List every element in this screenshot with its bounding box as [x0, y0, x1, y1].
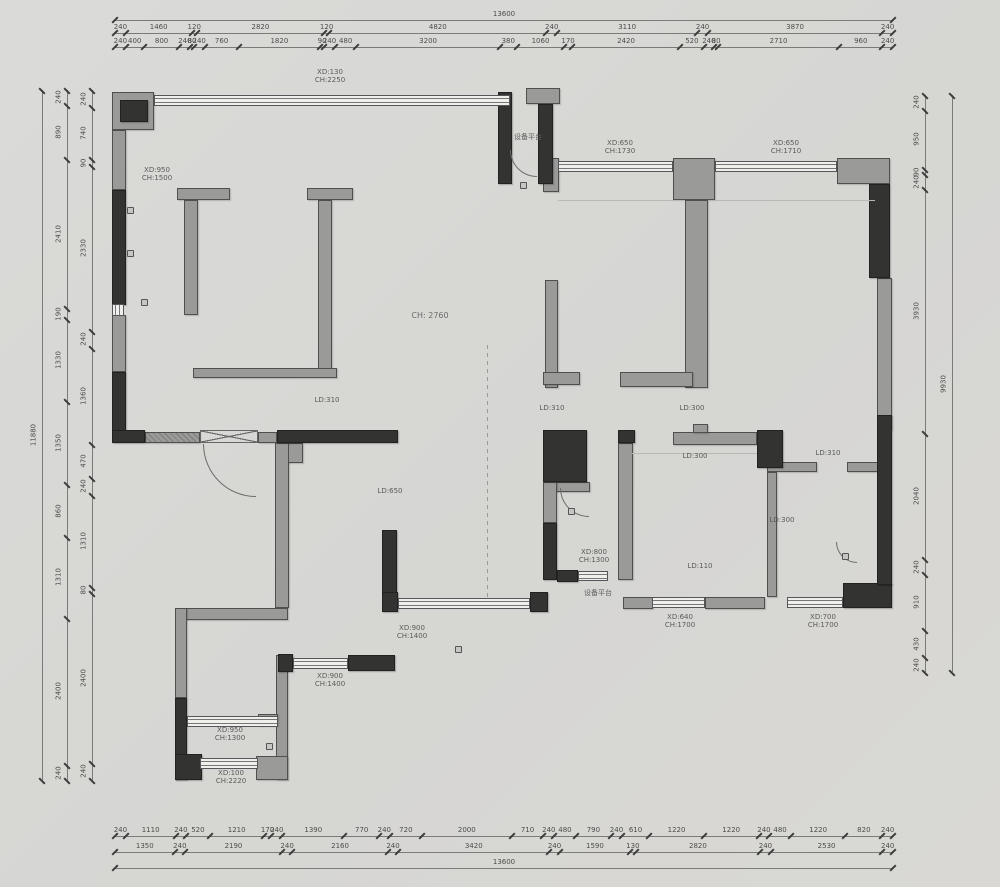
dim-label: 480: [558, 827, 571, 834]
fixture-icon: [141, 299, 148, 306]
dim-label: 170: [561, 38, 574, 45]
dim-label: 240: [173, 843, 186, 850]
dim-label: 760: [215, 38, 228, 45]
dim-line: [115, 868, 893, 869]
fixture-icon: [127, 250, 134, 257]
door-swing-icon: [203, 444, 256, 497]
beam-label: LD:110: [687, 562, 712, 570]
dim-line: [115, 47, 893, 48]
dim-label: 1350: [136, 843, 154, 850]
dim-label: 240: [542, 827, 555, 834]
window-band: [154, 95, 510, 106]
dim-label: 1330: [56, 351, 63, 369]
dim-label: 2420: [617, 38, 635, 45]
dim-label: 4820: [429, 24, 447, 31]
wall-segment: [175, 608, 288, 620]
wall-dark-segment: [277, 430, 398, 443]
dim-label: 240: [757, 827, 770, 834]
floorplan-canvas: XD:130 CH:2250 XD:950 CH:1500 设备平台 XD:65…: [0, 0, 1000, 887]
beam-label: LD:300: [769, 516, 794, 524]
wall-segment: [673, 158, 715, 200]
beam-label: LD:310: [815, 449, 840, 457]
window-annotation: XD:650 CH:1710: [771, 139, 801, 155]
beam-label: LD:310: [539, 404, 564, 412]
dim-label: 240: [881, 24, 894, 31]
wall-segment: [620, 372, 693, 387]
wall-dark-segment: [618, 430, 635, 443]
dim-label: 1590: [586, 843, 604, 850]
dim-label: 1360: [81, 387, 88, 405]
window-band: [715, 161, 837, 172]
dim-label: 240: [280, 843, 293, 850]
entry-door-opening: [200, 430, 258, 443]
dim-label: 13600: [493, 859, 515, 866]
platform-label: 设备平台: [514, 133, 542, 141]
dim-label: 820: [857, 827, 870, 834]
dim-label: 240: [114, 24, 127, 31]
dim-label: 800: [155, 38, 168, 45]
wall-dark-segment: [278, 654, 293, 672]
floorplan-drawing: XD:130 CH:2250 XD:950 CH:1500 设备平台 XD:65…: [0, 0, 1000, 887]
guide-line: [558, 200, 685, 201]
dim-label: 1220: [668, 827, 686, 834]
window-band: [558, 161, 673, 172]
window-annotation: XD:640 CH:1700: [665, 613, 695, 629]
wall-segment: [543, 482, 557, 523]
window-band: [652, 597, 705, 608]
window-annotation: XD:900 CH:1400: [315, 672, 345, 688]
wall-dark-segment: [538, 104, 553, 184]
dim-label: 240: [56, 766, 63, 779]
dim-line: [952, 95, 953, 672]
wall-segment: [288, 443, 303, 463]
wall-segment: [307, 188, 353, 200]
wall-dark-segment: [112, 430, 145, 443]
wall-dark-segment: [530, 592, 548, 612]
dim-label: 2160: [331, 843, 349, 850]
dim-label: 520: [191, 827, 204, 834]
dim-label: 1390: [304, 827, 322, 834]
wall-dark-segment: [112, 190, 126, 305]
dim-label: 240: [81, 92, 88, 105]
dim-label: 2820: [689, 843, 707, 850]
wall-segment: [145, 432, 200, 443]
dim-label: 480: [339, 38, 352, 45]
dim-label: 960: [854, 38, 867, 45]
dim-label: 120: [320, 24, 333, 31]
window-band: [200, 758, 258, 769]
dim-label: 130: [626, 843, 639, 850]
dim-label: 240: [323, 38, 336, 45]
dim-label: 480: [773, 827, 786, 834]
dim-label: 240: [881, 827, 894, 834]
wall-dark-segment: [348, 655, 395, 671]
dim-label: 240: [378, 827, 391, 834]
wall-segment: [623, 597, 653, 609]
window-band: [112, 304, 124, 316]
dim-label: 3420: [465, 843, 483, 850]
fixture-icon: [127, 207, 134, 214]
dim-label: 80: [81, 586, 88, 595]
beam-label: LD:310: [314, 396, 339, 404]
dim-label: 3870: [786, 24, 804, 31]
wall-segment: [275, 443, 289, 608]
fixture-icon: [842, 553, 849, 560]
dim-label: 13600: [493, 11, 515, 18]
dim-line: [925, 95, 926, 672]
guide-line: [487, 345, 488, 600]
dim-label: 9930: [941, 375, 948, 393]
wall-dark-segment: [175, 754, 202, 780]
window-annotation: XD:130 CH:2250: [315, 68, 345, 84]
dim-label: 240: [881, 38, 894, 45]
dim-label: 740: [81, 127, 88, 140]
dim-label: 910: [914, 596, 921, 609]
dim-label: 240: [545, 24, 558, 31]
window-annotation: XD:950 CH:1300: [215, 726, 245, 742]
wall-segment: [767, 472, 777, 597]
dim-line: [115, 20, 893, 21]
dim-label: 240: [914, 658, 921, 671]
dim-label: 240: [696, 24, 709, 31]
wall-dark-segment: [757, 430, 783, 468]
platform-label: 设备平台: [584, 589, 612, 597]
wall-segment: [258, 432, 277, 443]
dim-label: 2820: [252, 24, 270, 31]
dim-label: 1310: [56, 568, 63, 586]
dim-line: [115, 33, 893, 34]
dim-label: 240: [548, 843, 561, 850]
window-annotation: XD:800 CH:1300: [579, 548, 609, 564]
dim-label: 770: [355, 827, 368, 834]
dim-label: 2410: [56, 225, 63, 243]
window-annotation: XD:900 CH:1400: [397, 624, 427, 640]
dim-label: 240: [81, 479, 88, 492]
window-band: [787, 597, 843, 608]
dim-label: 860: [56, 504, 63, 517]
dim-label: 1820: [270, 38, 288, 45]
wall-segment: [193, 368, 337, 378]
dim-label: 240: [174, 827, 187, 834]
dim-line: [42, 90, 43, 780]
window-annotation: XD:700 CH:1700: [808, 613, 838, 629]
dim-label: 1350: [56, 434, 63, 452]
wall-segment: [184, 200, 198, 315]
dim-label: 120: [188, 24, 201, 31]
wall-dark-segment: [877, 415, 892, 585]
wall-segment: [693, 424, 708, 433]
window-band: [293, 658, 348, 669]
wall-segment: [177, 188, 230, 200]
dim-label: 790: [587, 827, 600, 834]
fixture-icon: [520, 182, 527, 189]
wall-segment: [543, 372, 580, 385]
dim-label: 240: [81, 333, 88, 346]
wall-dark-segment: [112, 372, 126, 432]
dim-label: 80: [712, 38, 721, 45]
window-annotation: XD:100 CH:2220: [216, 769, 246, 785]
wall-segment: [112, 130, 126, 190]
beam-label: LD:300: [682, 452, 707, 460]
room-height-label: CH: 2760: [411, 312, 448, 320]
dim-label: 240: [270, 827, 283, 834]
dim-label: 1460: [150, 24, 168, 31]
dim-label: 710: [521, 827, 534, 834]
dim-label: 2000: [458, 827, 476, 834]
dim-label: 240: [881, 843, 894, 850]
dim-label: 240: [193, 38, 206, 45]
dim-label: 240: [914, 96, 921, 109]
dim-label: 2530: [818, 843, 836, 850]
wall-segment: [112, 315, 126, 372]
dim-label: 90: [81, 158, 88, 167]
dim-label: 1310: [81, 532, 88, 550]
dim-label: 190: [56, 307, 63, 320]
dim-label: 240: [759, 843, 772, 850]
wall-dark-segment: [543, 523, 557, 580]
dim-label: 2330: [81, 239, 88, 257]
dim-label: 1220: [722, 827, 740, 834]
dim-label: 430: [914, 637, 921, 650]
dim-label: 1110: [142, 827, 160, 834]
fixture-icon: [568, 508, 575, 515]
dim-label: 2710: [770, 38, 788, 45]
guide-line: [715, 200, 875, 201]
dim-tick: [889, 864, 896, 871]
wall-segment: [705, 597, 765, 609]
dim-label: 240: [56, 91, 63, 104]
dim-label: 3110: [618, 24, 636, 31]
dim-line: [67, 90, 68, 780]
door-swing-icon: [510, 150, 537, 177]
fixture-icon: [266, 743, 273, 750]
dim-label: 380: [502, 38, 515, 45]
dim-label: 240: [81, 765, 88, 778]
dim-line: [115, 852, 893, 853]
wall-segment: [877, 278, 892, 430]
wall-dark-segment: [557, 570, 578, 582]
dim-label: 520: [685, 38, 698, 45]
dim-label: 470: [81, 454, 88, 467]
dim-label: 3200: [419, 38, 437, 45]
dim-label: 890: [56, 125, 63, 138]
dim-label: 2040: [914, 487, 921, 505]
wall-segment: [673, 432, 757, 445]
dim-label: 240: [386, 843, 399, 850]
dim-label: 240: [914, 175, 921, 188]
wall-segment: [618, 443, 633, 580]
window-annotation: XD:950 CH:1500: [142, 166, 172, 182]
wall-dark-segment: [543, 430, 587, 482]
dim-label: 1210: [228, 827, 246, 834]
window-annotation: XD:650 CH:1730: [605, 139, 635, 155]
dim-line: [92, 90, 93, 780]
wall-dark-segment: [869, 184, 890, 278]
dim-label: 1220: [809, 827, 827, 834]
dim-label: 2190: [225, 843, 243, 850]
beam-label: LD:650: [377, 487, 402, 495]
window-band: [398, 598, 530, 609]
wall-segment: [318, 200, 332, 372]
dim-label: 11880: [31, 424, 38, 446]
dim-label: 2400: [81, 669, 88, 687]
wall-segment: [175, 608, 187, 698]
dim-label: 610: [629, 827, 642, 834]
fixture-icon: [455, 646, 462, 653]
dim-label: 1060: [532, 38, 550, 45]
wall-segment: [837, 158, 890, 184]
dim-label: 720: [399, 827, 412, 834]
wall-segment: [685, 200, 708, 388]
dim-label: 950: [914, 133, 921, 146]
window-band: [578, 571, 608, 581]
wall-segment: [256, 756, 288, 780]
wall-segment: [526, 88, 560, 104]
dim-label: 240: [114, 827, 127, 834]
dim-label: 3930: [914, 302, 921, 320]
dim-line: [115, 836, 893, 837]
wall-dark-segment: [120, 100, 148, 122]
dim-label: 240: [914, 560, 921, 573]
dim-label: 400: [128, 38, 141, 45]
wall-dark-segment: [382, 592, 398, 612]
beam-label: LD:300: [679, 404, 704, 412]
dim-label: 240: [114, 38, 127, 45]
wall-dark-segment: [843, 583, 892, 608]
dim-label: 240: [610, 827, 623, 834]
dim-label: 2400: [56, 683, 63, 701]
